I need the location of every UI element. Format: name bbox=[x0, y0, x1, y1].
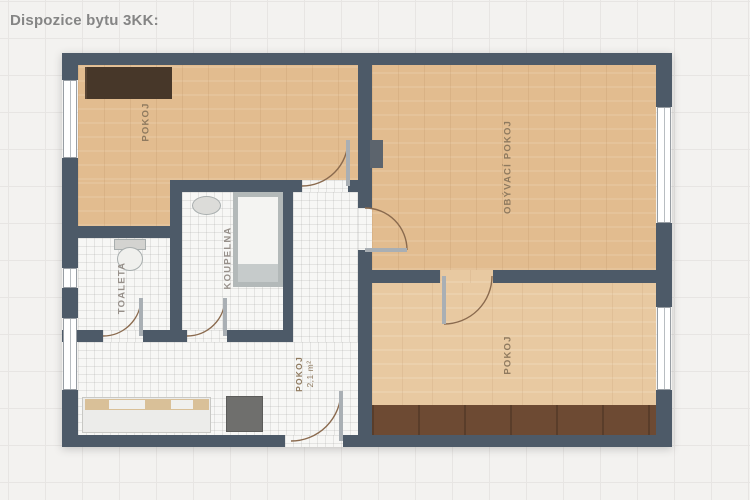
door-gap-toaleta bbox=[103, 330, 143, 342]
wall-pokoj-toaleta bbox=[62, 226, 170, 238]
wall-toaleta-koupelna bbox=[170, 180, 182, 342]
label-pokoj-top: POKOJ bbox=[141, 102, 152, 141]
wall-pokoj-obyvaci bbox=[358, 65, 372, 208]
wall-outer-right-3 bbox=[656, 390, 672, 447]
window-left-2 bbox=[63, 268, 77, 288]
wall-hall-pokoj-bottom bbox=[358, 283, 372, 447]
sofa-cushion-gap bbox=[171, 400, 193, 409]
page-title: Dispozice bytu 3KK: bbox=[10, 12, 159, 29]
door-gap-koupelna bbox=[187, 330, 227, 342]
wall-outer-right-1 bbox=[656, 53, 672, 107]
door-gap-pokoj-top bbox=[302, 180, 348, 192]
room-obyvaci-floor bbox=[372, 65, 656, 270]
room-pokoj-top-floor-ext bbox=[78, 180, 170, 226]
sofa bbox=[82, 397, 211, 433]
wall-toaleta-bottom-2 bbox=[143, 330, 187, 342]
wall-koupelna-bottom bbox=[227, 330, 293, 342]
bathtub-seat bbox=[238, 264, 278, 282]
label-obyvaci-pokoj: OBÝVACÍ POKOJ bbox=[503, 120, 514, 214]
wall-obyvaci-pokoj-bottom-2 bbox=[493, 270, 656, 283]
hall-strip-floor bbox=[293, 192, 358, 342]
wall-outer-left-3 bbox=[62, 288, 78, 318]
side-table bbox=[226, 396, 263, 432]
bathtub bbox=[233, 192, 283, 287]
wall-obyvaci-pokoj-bottom-1 bbox=[358, 270, 440, 283]
window-left-3 bbox=[63, 318, 77, 390]
window-pane bbox=[70, 319, 71, 389]
floor-plan-canvas: Dispozice bytu 3KK: bbox=[0, 0, 750, 500]
label-hala-name: POKOJ bbox=[294, 356, 305, 392]
sink bbox=[192, 196, 221, 215]
label-hala: POKOJ 2,1 m² bbox=[294, 356, 316, 392]
door-gap-obyvaci bbox=[358, 208, 372, 250]
label-hala-area: 2,1 m² bbox=[305, 356, 316, 392]
wall-outer-bottom-left bbox=[62, 435, 285, 447]
wall-outer-left-4 bbox=[62, 390, 78, 447]
wall-outer-bottom-right bbox=[343, 435, 672, 447]
wall-outer-top bbox=[62, 53, 672, 65]
wall-outer-left-2 bbox=[62, 158, 78, 268]
tv-unit bbox=[370, 140, 383, 168]
label-toaleta: TOALETA bbox=[117, 262, 128, 314]
label-koupelna: KOUPELNA bbox=[223, 227, 234, 290]
window-right-1 bbox=[657, 107, 671, 223]
window-pane bbox=[664, 108, 665, 222]
wall-pokoj-top-door-post bbox=[348, 180, 358, 192]
window-right-2 bbox=[657, 307, 671, 390]
label-pokoj-bottom: POKOJ bbox=[503, 335, 514, 374]
door-gap-pokoj-bottom bbox=[440, 270, 493, 283]
wall-koupelna-right bbox=[283, 180, 293, 342]
wardrobe bbox=[85, 67, 172, 99]
wall-outer-left-1 bbox=[62, 53, 78, 80]
wall-outer-right-2 bbox=[656, 223, 672, 307]
entrance-door-gap bbox=[285, 435, 343, 447]
window-pane bbox=[664, 308, 665, 389]
bed-wardrobe-strip bbox=[372, 405, 656, 435]
sofa-cushion-gap bbox=[109, 400, 145, 409]
window-pane bbox=[70, 269, 71, 287]
window-left-1 bbox=[63, 80, 77, 158]
window-pane bbox=[70, 81, 71, 157]
